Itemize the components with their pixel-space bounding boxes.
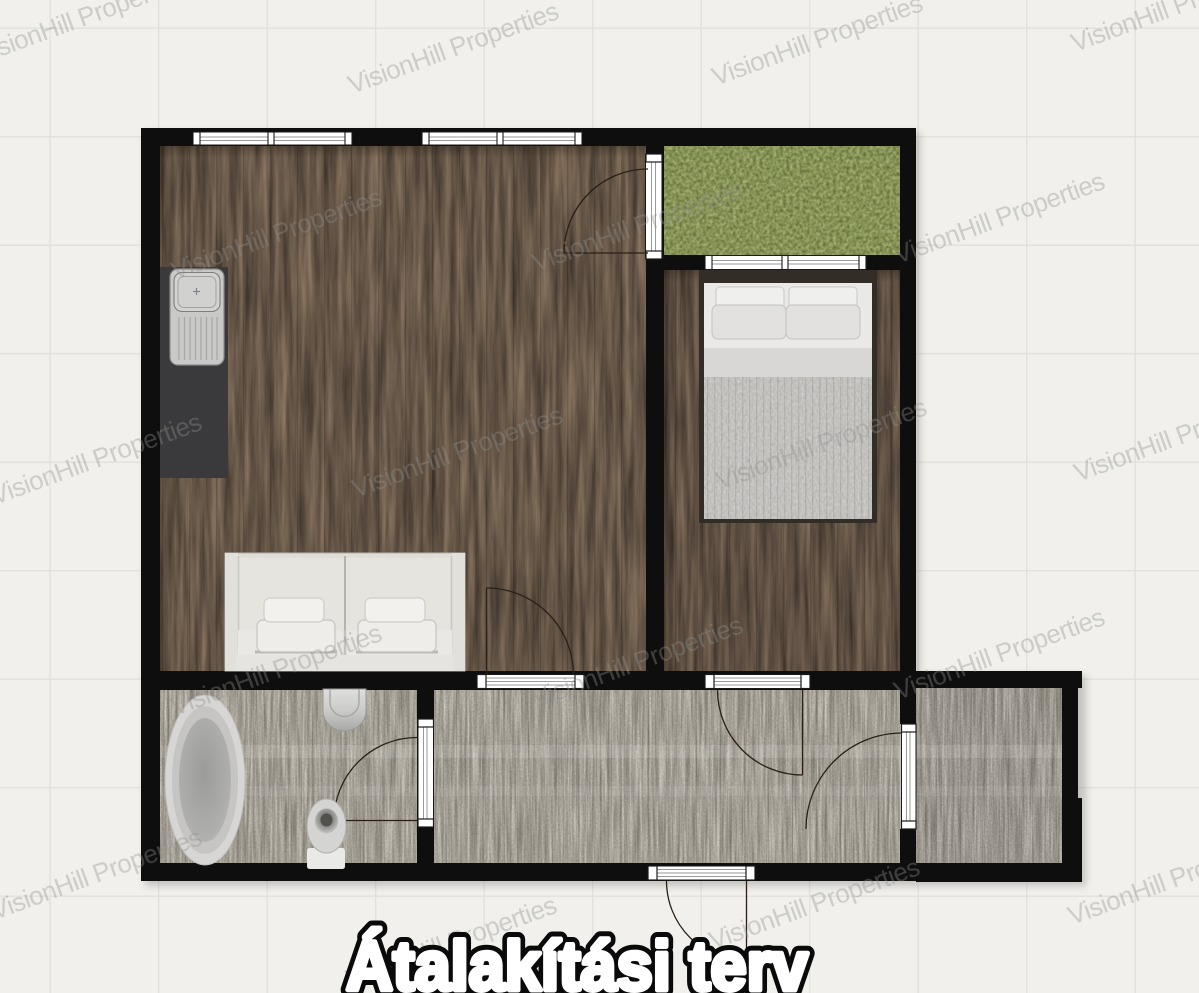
svg-text:Átalakítási terv: Átalakítási terv xyxy=(346,927,808,993)
